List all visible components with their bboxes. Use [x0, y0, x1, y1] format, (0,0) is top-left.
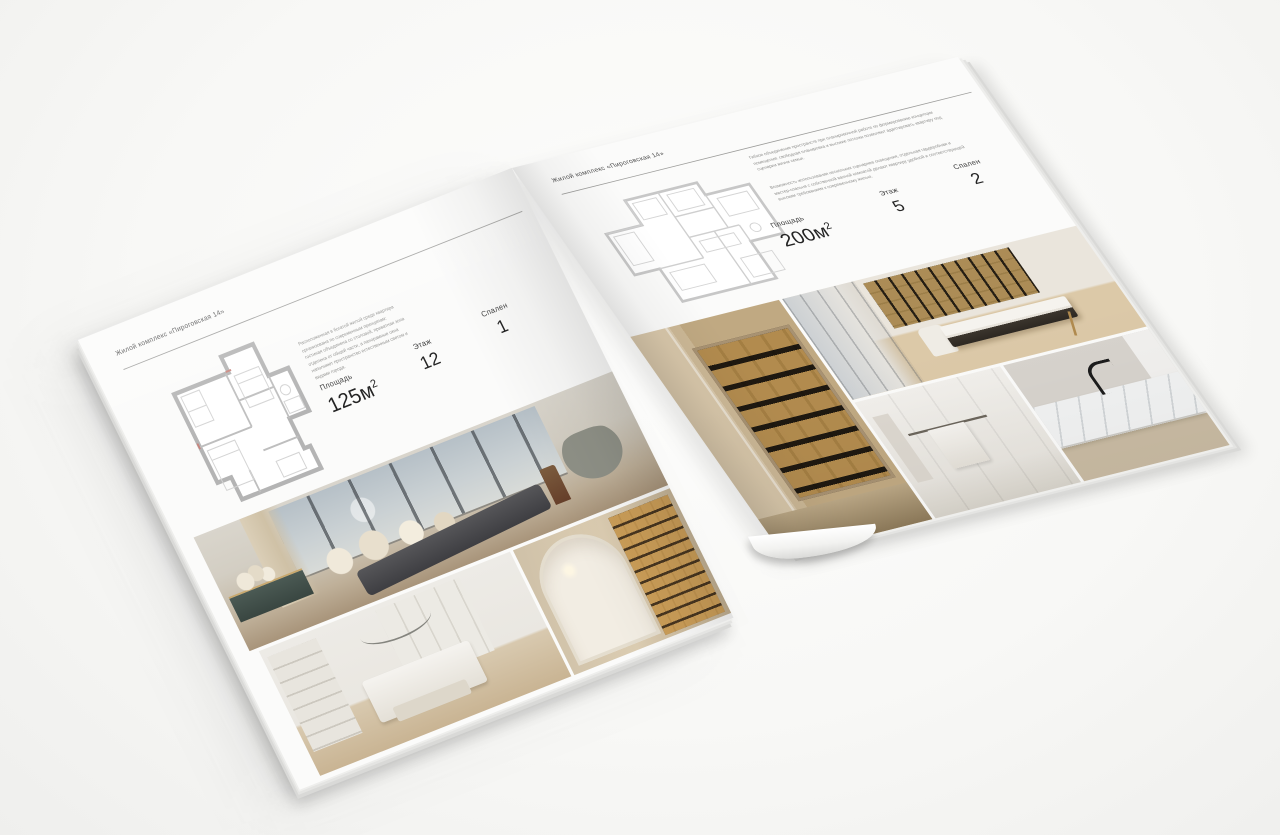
towel: [928, 422, 991, 469]
right-header-rule: [561, 92, 971, 195]
bedrooms-stat-left: Спален 1: [460, 293, 539, 349]
armchair: [551, 418, 638, 492]
photo-of-open-brochure: Жилой комплекс «Пироговская 14» Располож…: [0, 0, 1280, 835]
floor-stat-right: Этаж 5: [855, 180, 936, 222]
wall-shelves: [267, 638, 362, 752]
black-faucet: [1082, 358, 1130, 395]
